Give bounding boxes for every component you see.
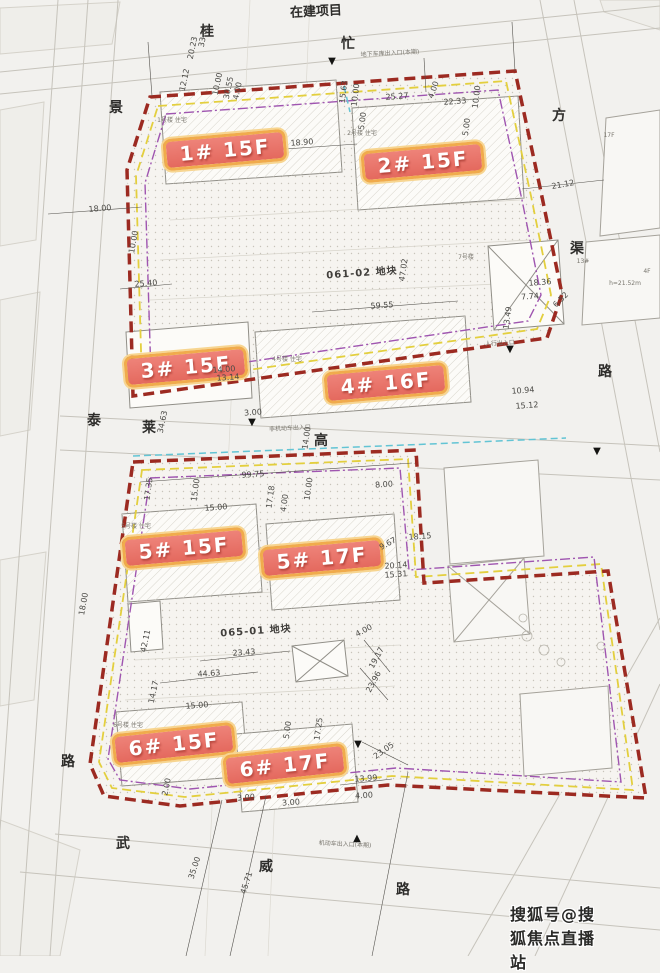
tiny-label: 7号楼 bbox=[458, 255, 474, 261]
tiny-label: 地下车库出入口(本期) bbox=[361, 49, 420, 58]
road-label: 路 bbox=[598, 365, 612, 379]
dimension-label: 15.00 bbox=[185, 701, 208, 711]
dimension-label: 59.55 bbox=[370, 301, 393, 311]
dimension-label: 15.63 bbox=[339, 80, 350, 104]
dimension-label: 18.00 bbox=[78, 592, 90, 616]
tiny-label: 13# bbox=[577, 259, 590, 265]
tiny-label: 5号楼 住宅 bbox=[121, 524, 151, 530]
dimension-label: 20.23 bbox=[187, 36, 200, 60]
dimension-label: 4.00 bbox=[354, 623, 373, 638]
tiny-label: 2号楼 住宅 bbox=[347, 131, 377, 137]
dimension-label: 17.18 bbox=[265, 485, 276, 509]
dimension-label: 19.17 bbox=[368, 646, 386, 670]
road-label: 威 bbox=[259, 860, 273, 874]
dimension-label: 10.00 bbox=[303, 477, 314, 501]
dimension-label: 18.36 bbox=[528, 278, 551, 288]
dimension-label: 4.00 bbox=[232, 81, 244, 100]
watermark: 搜狐号@搜狐焦点直播站 bbox=[510, 901, 610, 973]
dimension-label: 23.96 bbox=[365, 670, 383, 694]
site-plan-page: 1# 15F2# 15F3# 15F4# 16F5# 15F5# 17F6# 1… bbox=[0, 0, 660, 956]
dimension-label: 15.12 bbox=[515, 401, 538, 411]
entrance-marker: ▼ bbox=[506, 345, 514, 355]
tiny-label: 17F bbox=[603, 133, 614, 139]
tiny-label: 1号楼 住宅 bbox=[157, 118, 187, 124]
dimension-label: 7.74 bbox=[521, 292, 539, 301]
road-label: 忙 bbox=[341, 37, 355, 51]
road-label: 路 bbox=[396, 883, 410, 897]
tiny-label: 4F bbox=[643, 269, 650, 275]
dimension-label: 13.14 bbox=[216, 373, 239, 383]
tiny-label: h=21.52m bbox=[609, 281, 641, 287]
dimension-label: 5.00 bbox=[462, 118, 472, 137]
dimension-label: 3.00 bbox=[237, 793, 255, 802]
dimension-label: 23.43 bbox=[232, 648, 255, 658]
dimension-label: 45.71 bbox=[240, 871, 255, 895]
entrance-marker: ▼ bbox=[248, 418, 256, 428]
dimension-label: 15.31 bbox=[384, 570, 407, 580]
dimension-label: 2.00 bbox=[161, 777, 173, 796]
dimension-label: 34.63 bbox=[157, 410, 170, 434]
dimension-label: 5.00 bbox=[358, 112, 368, 131]
dimension-label: 18.15 bbox=[408, 532, 431, 542]
annotation-layer: 1# 15F2# 15F3# 15F4# 16F5# 15F5# 17F6# 1… bbox=[0, 0, 660, 956]
dimension-label: 21.12 bbox=[551, 179, 575, 191]
entrance-marker: ▼ bbox=[354, 740, 362, 750]
dimension-label: 99.75 bbox=[241, 470, 264, 480]
dimension-label: 18.90 bbox=[290, 138, 313, 148]
tiny-label: 6号楼 住宅 bbox=[113, 723, 143, 729]
dimension-label: 12.12 bbox=[179, 68, 192, 92]
dimension-label: 13.99 bbox=[354, 774, 377, 784]
dimension-label: 25.27 bbox=[385, 92, 408, 102]
dimension-label: 10.00 bbox=[128, 230, 140, 254]
building-label: 4# 16F bbox=[323, 362, 448, 405]
dimension-label: 17.35 bbox=[143, 477, 154, 501]
dimension-label: 44.63 bbox=[197, 669, 220, 679]
dimension-label: 4.00 bbox=[355, 791, 373, 800]
entrance-marker: ▼ bbox=[593, 447, 601, 457]
road-label: 莱 bbox=[142, 421, 156, 435]
dimension-label: 15.00 bbox=[204, 503, 227, 513]
dimension-label: 23.05 bbox=[372, 741, 395, 761]
dimension-label: 35.00 bbox=[188, 856, 203, 880]
dimension-label: 4.00 bbox=[427, 80, 441, 99]
road-label: 路 bbox=[61, 755, 75, 769]
dimension-label: 17.25 bbox=[313, 717, 324, 741]
dimension-label: 4.00 bbox=[280, 494, 290, 513]
dimension-label: 22.33 bbox=[443, 97, 466, 107]
entrance-marker: ▼ bbox=[328, 57, 336, 67]
building-label: 2# 15F bbox=[360, 141, 485, 184]
road-label: 渠 bbox=[570, 242, 584, 256]
road-label: 泰 bbox=[87, 414, 101, 428]
dimension-label: 10.00 bbox=[472, 85, 483, 109]
road-label: 方 bbox=[552, 109, 566, 123]
dimension-label: 15.00 bbox=[190, 478, 201, 502]
dimension-label: 8.00 bbox=[375, 480, 393, 489]
dimension-label: 25.40 bbox=[134, 279, 157, 289]
dimension-label: 42.11 bbox=[140, 629, 153, 653]
building-label: 1# 15F bbox=[162, 129, 287, 172]
dimension-label: 9.67 bbox=[378, 536, 397, 551]
tiny-label: 4号楼 住宅 bbox=[272, 357, 302, 363]
dimension-label: 5.00 bbox=[283, 721, 293, 740]
dimension-label: 3.00 bbox=[282, 798, 300, 807]
entrance-marker: ▲ bbox=[353, 834, 361, 844]
parcel-label: 061-02 地块 bbox=[326, 267, 398, 282]
building-label: 5# 17F bbox=[259, 537, 384, 580]
dimension-label: 47.02 bbox=[398, 258, 409, 282]
building-label: 6# 17F bbox=[222, 743, 348, 788]
dimension-label: 10.94 bbox=[511, 386, 534, 396]
road-label: 武 bbox=[116, 837, 130, 851]
dimension-label: 18.00 bbox=[88, 204, 112, 214]
building-label: 5# 15F bbox=[121, 527, 246, 570]
dimension-label: 6.52 bbox=[552, 291, 570, 309]
dimension-label: 14.17 bbox=[148, 680, 161, 704]
road-label: 高 bbox=[314, 434, 328, 448]
tiny-label: 机动车出入口(本期) bbox=[319, 841, 372, 850]
road-label: 在建项目 bbox=[290, 4, 343, 20]
parcel-label: 065-01 地块 bbox=[220, 625, 292, 640]
road-label: 景 bbox=[109, 101, 123, 115]
dimension-label: 13.49 bbox=[502, 306, 513, 330]
dimension-label: 10.00 bbox=[351, 83, 362, 107]
